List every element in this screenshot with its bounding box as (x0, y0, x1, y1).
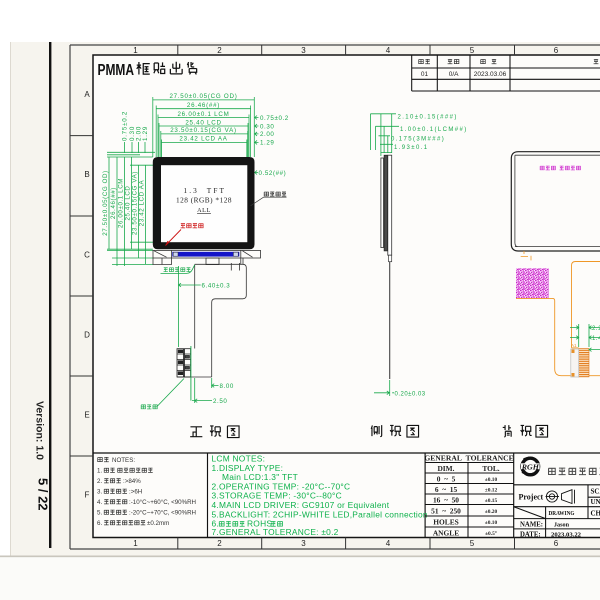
svg-text:6: 6 (554, 46, 559, 55)
svg-text:±0.20: ±0.20 (485, 509, 498, 515)
svg-text:DIM.: DIM. (437, 464, 454, 473)
svg-text:0.75±0.2: 0.75±0.2 (122, 111, 129, 141)
svg-text:GENERAL TOLERANCE: GENERAL TOLERANCE (424, 454, 513, 463)
svg-text:5.: 5. (97, 510, 102, 517)
svg-text:±0.10: ±0.10 (485, 477, 498, 483)
svg-text:Version: 1.0: Version: 1.0 (34, 401, 46, 460)
svg-text:6.: 6. (97, 520, 102, 527)
svg-text:B: B (84, 170, 89, 179)
svg-text:±0.5°: ±0.5° (485, 530, 497, 537)
svg-text:51 ~ 250: 51 ~ 250 (431, 506, 461, 515)
svg-text:2.: 2. (97, 478, 102, 485)
svg-text:1.4: 1.4 (592, 336, 600, 342)
svg-text:DRAWING: DRAWING (549, 510, 575, 517)
svg-text:1.00±0.1(LCM##): 1.00±0.1(LCM##) (400, 127, 468, 133)
svg-text:2023.03.06: 2023.03.06 (474, 71, 507, 78)
svg-text:0.75±0.2: 0.75±0.2 (260, 115, 289, 122)
svg-text:2: 2 (217, 539, 222, 548)
svg-text:4: 4 (386, 46, 391, 55)
svg-text:8.00: 8.00 (220, 383, 234, 390)
svg-text:1.: 1. (97, 468, 102, 475)
svg-text:25.40 LCD: 25.40 LCD (125, 186, 132, 221)
svg-text:E: E (84, 411, 89, 420)
svg-text:23.42 LCD AA: 23.42 LCD AA (139, 180, 146, 227)
svg-text:25.40 LCD: 25.40 LCD (185, 119, 221, 126)
svg-text:6: 6 (554, 539, 559, 548)
svg-text:2.00: 2.00 (260, 131, 274, 138)
svg-text:23.50±0.15(CG VA): 23.50±0.15(CG VA) (170, 127, 237, 134)
svg-text:±0.2mm: ±0.2mm (147, 520, 169, 527)
svg-text:1: 1 (133, 539, 138, 548)
svg-text:ALL: ALL (197, 207, 211, 214)
svg-text:16 ~ 50: 16 ~ 50 (433, 495, 459, 504)
svg-text:4: 4 (386, 539, 391, 548)
svg-text:2.10±0.15(###): 2.10±0.15(###) (398, 114, 458, 120)
svg-text:3.: 3. (97, 489, 102, 496)
svg-text:01: 01 (421, 71, 429, 78)
svg-text:±0.12: ±0.12 (485, 488, 498, 494)
svg-text::-10°C~+60°C, <90%RH: :-10°C~+60°C, <90%RH (129, 499, 196, 506)
svg-text:DATE:: DATE: (520, 532, 541, 539)
svg-text:2.50: 2.50 (213, 398, 227, 405)
svg-text:±0.15: ±0.15 (485, 498, 498, 504)
svg-text::-20°C~+70°C, <90%RH: :-20°C~+70°C, <90%RH (129, 510, 196, 517)
svg-text:0/A: 0/A (449, 71, 459, 78)
svg-text:5: 5 (470, 539, 475, 548)
svg-text:0.175(3M###): 0.175(3M###) (391, 136, 445, 142)
svg-text:0.20±0.03: 0.20±0.03 (395, 392, 426, 398)
svg-text:23.50±0.15(CG VA): 23.50±0.15(CG VA) (132, 171, 139, 235)
svg-text:0.30: 0.30 (260, 123, 274, 130)
svg-text:128 (RGB) *128: 128 (RGB) *128 (176, 196, 232, 205)
svg-text:26.46(##): 26.46(##) (187, 102, 220, 109)
svg-text:NOTES:: NOTES: (112, 457, 135, 464)
svg-text:F: F (85, 491, 90, 500)
svg-text:D: D (84, 331, 90, 340)
svg-text:C: C (84, 251, 90, 260)
svg-text:2.2: 2.2 (592, 326, 600, 332)
svg-text:±0.10: ±0.10 (485, 520, 498, 526)
svg-text:23.42 LCD AA: 23.42 LCD AA (179, 136, 227, 143)
svg-text:27.50±0.05(CG OD): 27.50±0.05(CG OD) (102, 170, 109, 236)
svg-text:A: A (84, 90, 90, 99)
svg-text:4.: 4. (97, 499, 102, 506)
svg-text:1: 1 (133, 46, 138, 55)
svg-text:A1: A1 (571, 343, 577, 348)
svg-text:5: 5 (470, 46, 475, 55)
svg-text:0 ~ 5: 0 ~ 5 (437, 474, 456, 483)
svg-text:7.GENERAL TOLERANCE: ±0.2: 7.GENERAL TOLERANCE: ±0.2 (212, 527, 339, 537)
svg-text:6.40±0.3: 6.40±0.3 (202, 283, 231, 290)
svg-text:TOL.: TOL. (482, 464, 499, 473)
svg-text:26.00±0.1 LCM: 26.00±0.1 LCM (118, 178, 125, 228)
svg-text:ANGLE: ANGLE (433, 529, 459, 538)
svg-text:1.29: 1.29 (142, 126, 149, 141)
svg-text:Jason: Jason (554, 521, 570, 528)
svg-text:PMMA: PMMA (98, 62, 135, 79)
svg-text:2: 2 (217, 46, 222, 55)
svg-text:2023.03.22: 2023.03.22 (551, 532, 581, 539)
svg-text:CHE: CHE (591, 509, 600, 517)
svg-text:RGH: RGH (521, 464, 540, 472)
svg-text:SCA: SCA (591, 487, 600, 495)
svg-text:NAME:: NAME: (520, 521, 543, 528)
svg-text:26.46(##): 26.46(##) (110, 187, 117, 219)
svg-text:UN: UN (591, 498, 600, 506)
svg-text:6 ~ 15: 6 ~ 15 (435, 485, 458, 494)
svg-text:0.52(##): 0.52(##) (259, 170, 287, 177)
svg-text:3: 3 (301, 46, 306, 55)
svg-text:3: 3 (301, 539, 306, 548)
svg-text:5 / 22: 5 / 22 (36, 478, 51, 511)
svg-text:26.00±0.1 LCM: 26.00±0.1 LCM (177, 111, 229, 118)
svg-text:1.93±0.1: 1.93±0.1 (394, 145, 429, 151)
svg-text:HOLES: HOLES (433, 518, 458, 527)
svg-text:Project: Project (519, 493, 544, 502)
svg-text::>84%: :>84% (123, 478, 141, 485)
svg-text:5.BACKLIGHT: 2CHIP-WHITE LED,P: 5.BACKLIGHT: 2CHIP-WHITE LED,Parallel co… (212, 509, 428, 519)
svg-text:27.50±0.05(CG OD): 27.50±0.05(CG OD) (169, 93, 237, 100)
svg-text:1.29: 1.29 (260, 140, 274, 147)
svg-text::>6H: :>6H (129, 489, 142, 496)
